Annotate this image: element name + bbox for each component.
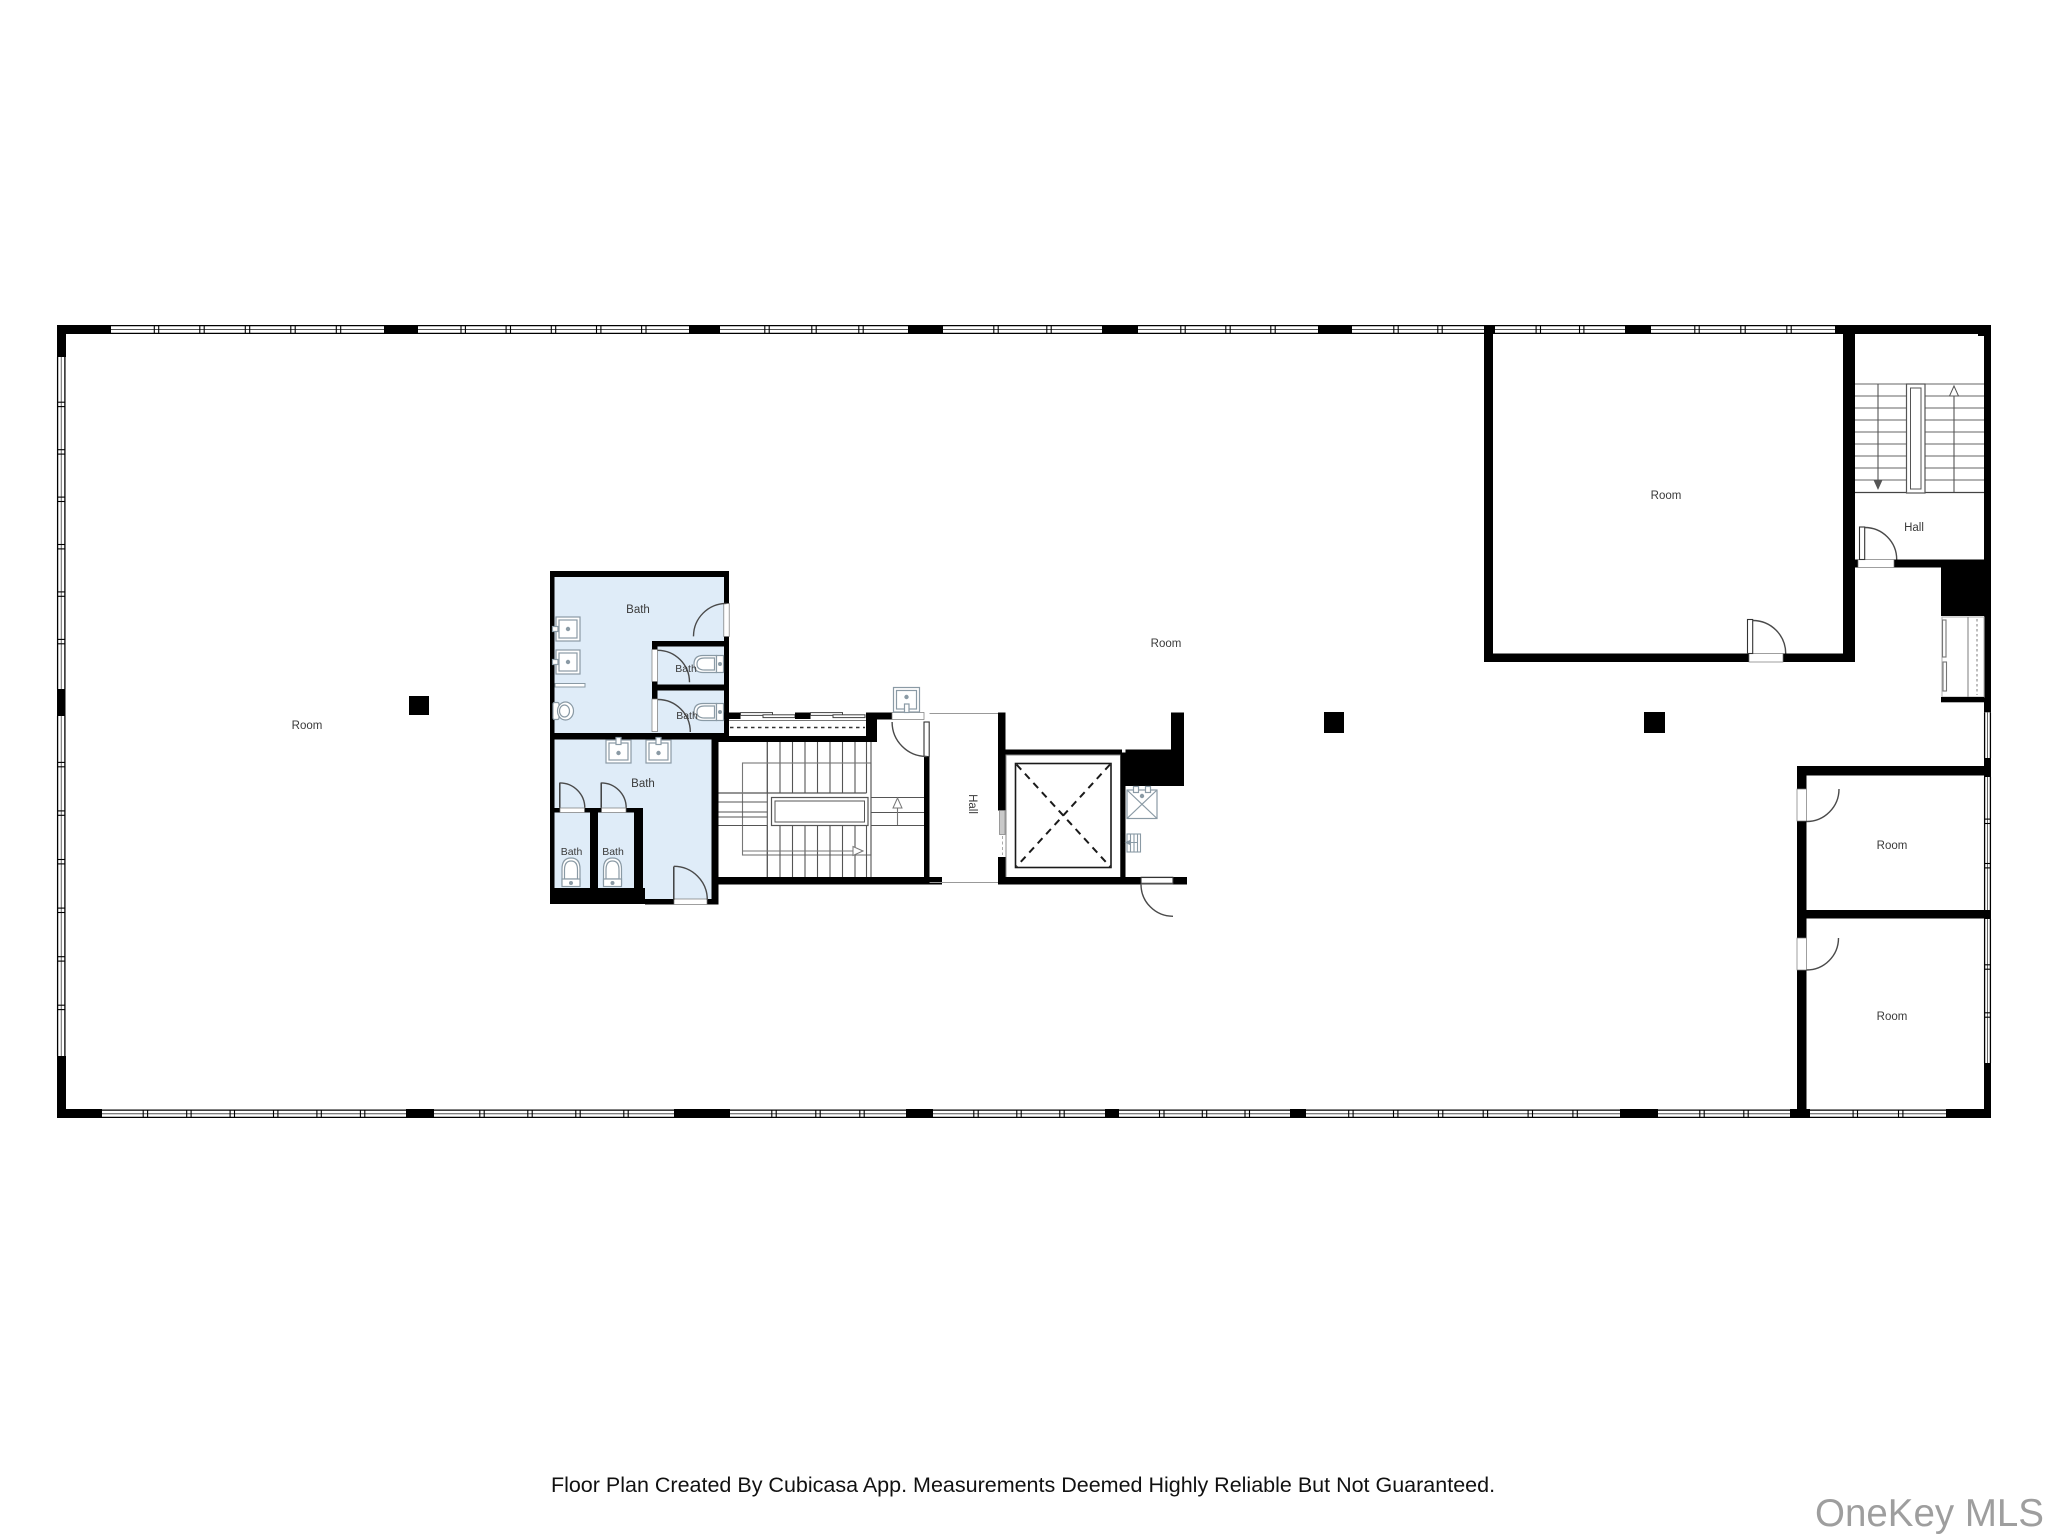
svg-text:Hall: Hall (966, 794, 978, 814)
svg-text:Floor Plan Created By Cubicasa: Floor Plan Created By Cubicasa App. Meas… (551, 1473, 1495, 1497)
svg-text:Room: Room (1651, 490, 1682, 502)
svg-text:Room: Room (1877, 840, 1908, 852)
svg-text:Bath: Bath (561, 846, 583, 858)
svg-text:Bath: Bath (631, 778, 655, 790)
svg-text:Bath: Bath (675, 663, 697, 675)
svg-text:Bath: Bath (676, 710, 698, 722)
svg-text:Room: Room (1151, 638, 1182, 650)
svg-text:Hall: Hall (1904, 522, 1924, 534)
svg-text:OneKey MLS: OneKey MLS (1815, 1492, 2044, 1535)
svg-text:Bath: Bath (602, 846, 624, 858)
svg-text:Room: Room (292, 720, 323, 732)
svg-text:Room: Room (1877, 1011, 1908, 1023)
svg-text:Bath: Bath (626, 604, 650, 616)
